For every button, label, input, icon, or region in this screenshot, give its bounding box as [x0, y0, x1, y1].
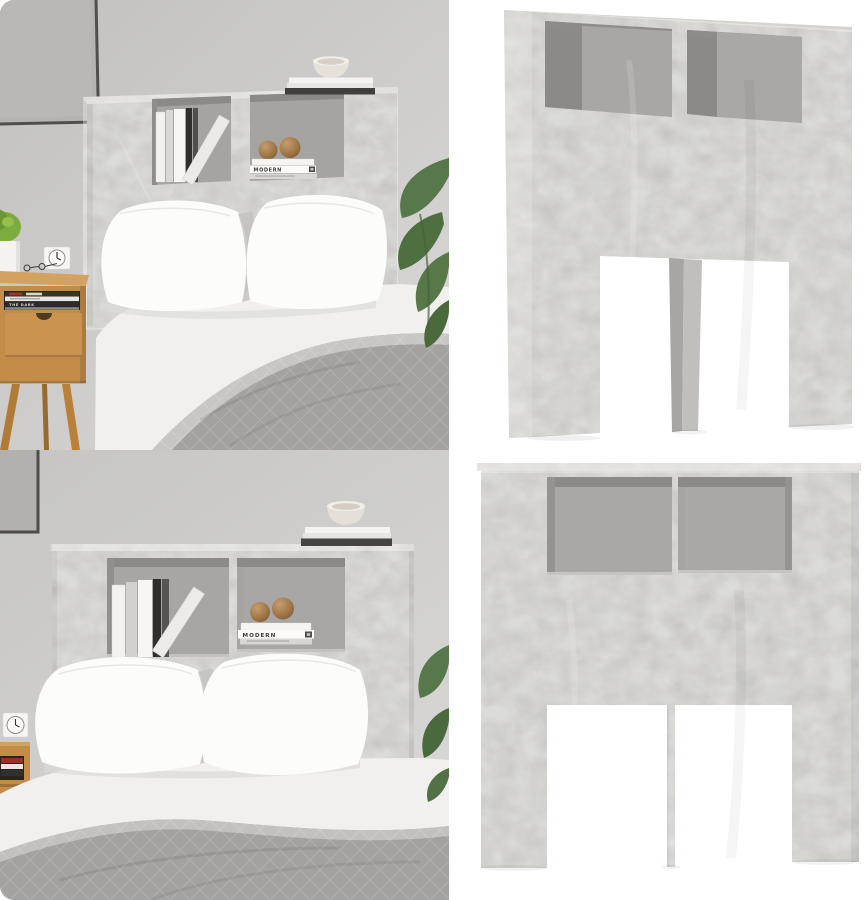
- pillow-right: [247, 195, 387, 309]
- gallery-image-studio-angled: [449, 0, 865, 450]
- floor-shadow: [528, 435, 600, 441]
- headboard-cabinet: [477, 460, 865, 872]
- modern-book-stack: MODERN: [238, 623, 314, 645]
- storage-compartment-right: [687, 30, 802, 123]
- wall-art-frame: [0, 450, 38, 532]
- pillow-left: [101, 200, 247, 311]
- pillow-right: [200, 654, 368, 775]
- dark-book-spine-label: THE DARK: [9, 302, 35, 307]
- center-divider-leg: [669, 258, 702, 432]
- pillow-left: [35, 657, 206, 774]
- product-photo-collage: MODERN: [0, 0, 865, 900]
- floor-shadow: [787, 424, 855, 430]
- modern-book-stack: MODERN: [249, 159, 317, 179]
- gallery-image-bedroom-angled: MODERN: [0, 0, 449, 450]
- headboard-cabinet: [499, 5, 859, 445]
- alarm-clock: [3, 713, 28, 737]
- headboard-left-edge-shade: [87, 104, 93, 326]
- floor-shadow: [792, 859, 858, 865]
- bedroom-front-scene: MODERN: [0, 450, 449, 900]
- storage-compartment-left: [545, 21, 672, 117]
- floor-shadow: [661, 865, 681, 869]
- books-on-top: [301, 527, 392, 546]
- floor-shadow: [671, 430, 707, 435]
- modern-book-spine-label: MODERN: [254, 168, 282, 174]
- modern-book-spine-label: MODERN: [243, 633, 277, 639]
- studio-front-scene: [449, 450, 865, 900]
- gallery-image-bedroom-front: MODERN: [0, 450, 449, 900]
- books-on-top: [285, 78, 375, 95]
- studio-angled-scene: [449, 0, 865, 450]
- nightstand-books: [1, 758, 23, 776]
- storage-compartment-left: [547, 477, 672, 575]
- storage-compartment-right: [678, 477, 792, 573]
- gallery-image-studio-front: [449, 450, 865, 900]
- bedroom-angled-scene: MODERN: [0, 0, 449, 450]
- floor-shadow: [481, 865, 547, 871]
